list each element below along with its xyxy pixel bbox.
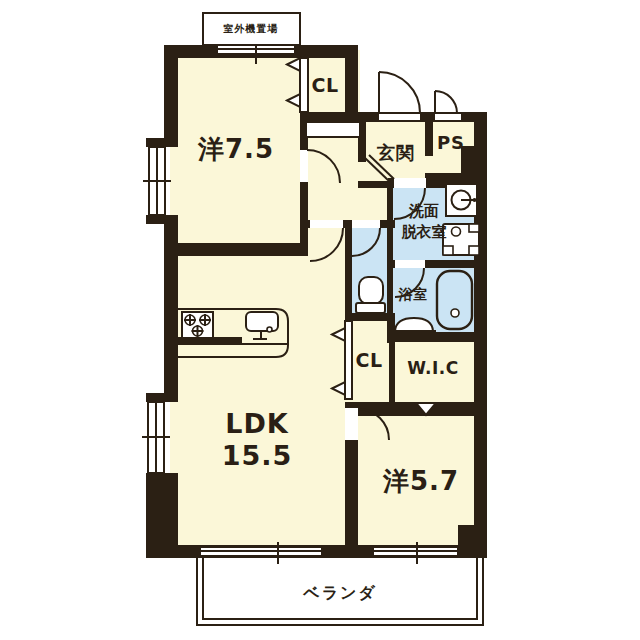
washing-machine-icon <box>446 184 477 216</box>
veranda-label: ベランダ <box>303 585 377 601</box>
pipe-space-label: PS <box>437 134 465 152</box>
stove-icon <box>182 312 213 338</box>
outdoor-unit-label: 室外機置場 <box>224 24 279 34</box>
hall-opening <box>306 122 360 137</box>
floor-plan: 室外機置場 洋7.5 CL 玄関 PS 洗面 脱衣室 浴室 LDK 15.5 C… <box>0 0 640 640</box>
bathroom-label: 浴室 <box>399 287 428 301</box>
closet-mid-folding-door <box>345 321 352 399</box>
closet-top-folding-door <box>300 58 308 112</box>
ps-door-opening <box>434 113 462 121</box>
ldk-label-name: LDK <box>222 408 293 440</box>
walk-in-closet-label: W.I.C <box>407 360 459 377</box>
washroom-label-line2: 脱衣室 <box>402 222 447 243</box>
floor-plan-drawing <box>0 0 640 640</box>
ldk-label-size: 15.5 <box>222 440 293 472</box>
closet-mid-label: CL <box>355 351 382 370</box>
entrance-label: 玄関 <box>377 144 415 162</box>
bath-counter-icon <box>395 318 433 331</box>
washroom-label: 洗面 脱衣室 <box>402 201 447 243</box>
closet-top-label: CL <box>311 76 338 95</box>
vanity-sink-icon <box>443 224 479 255</box>
bedroom-small-label: 洋5.7 <box>383 468 459 494</box>
ps-door-arc <box>435 91 457 113</box>
entrance-door-arc <box>379 72 420 113</box>
toilet-icon <box>356 277 385 313</box>
bedroom-large-label: 洋7.5 <box>198 136 274 162</box>
washroom-label-line1: 洗面 <box>402 201 447 222</box>
ldk-label: LDK 15.5 <box>222 408 293 472</box>
entrance-door-opening <box>378 113 421 121</box>
